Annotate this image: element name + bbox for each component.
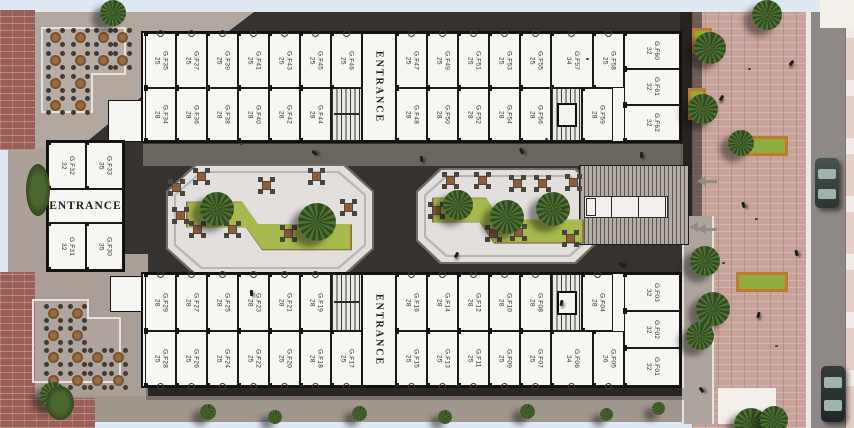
unit-area-label: 25 bbox=[338, 349, 346, 368]
courtyard-table bbox=[228, 225, 237, 234]
pedestrian bbox=[250, 290, 253, 296]
courtyard-table bbox=[197, 172, 206, 181]
unit-area-label: 25 bbox=[307, 51, 315, 70]
palm-tree bbox=[752, 0, 782, 30]
car bbox=[815, 158, 839, 208]
retail-unit: G.F5325 bbox=[489, 33, 520, 88]
door-arc-icon bbox=[532, 30, 539, 37]
retail-unit: G.F5734 bbox=[551, 33, 593, 88]
ramp-arrow-tail bbox=[705, 228, 717, 231]
unit-area-label: 28 bbox=[276, 293, 284, 312]
door-arc-icon bbox=[157, 30, 164, 37]
unit-number-label: G.F18 bbox=[316, 349, 324, 368]
unit-area-label: 28 bbox=[307, 349, 315, 368]
retail-unit: G.F1125 bbox=[458, 331, 489, 386]
unit-area-label: 28 bbox=[527, 293, 535, 312]
unit-area-label: 32 bbox=[644, 113, 652, 132]
unit-area-label: 28 bbox=[214, 105, 222, 124]
retail-unit: G.F4228 bbox=[269, 88, 300, 141]
cafe-table bbox=[98, 32, 109, 43]
door-arc-icon bbox=[408, 271, 415, 278]
courtyard-table bbox=[172, 183, 181, 192]
bird bbox=[586, 58, 589, 60]
driveway-arrow-icon bbox=[684, 222, 698, 232]
unit-number-label: G.F46 bbox=[347, 51, 355, 70]
palm-tree bbox=[268, 410, 282, 424]
unit-number-label: G.F30 bbox=[105, 237, 113, 256]
retail-unit: G.F0925 bbox=[489, 331, 520, 386]
unit-number-label: G.F12 bbox=[474, 293, 482, 312]
unit-number-label: G.F08 bbox=[536, 293, 544, 312]
unit-area-label: 28 bbox=[496, 105, 504, 124]
retail-unit: G.F2425 bbox=[207, 331, 238, 386]
retail-unit: G.F6132 bbox=[624, 69, 680, 105]
cafe-table bbox=[113, 352, 124, 363]
retail-unit: G.F3628 bbox=[176, 88, 207, 141]
door-arc-icon bbox=[439, 383, 446, 390]
retail-unit: G.F3525 bbox=[145, 33, 176, 88]
unit-area-label: 32 bbox=[59, 237, 67, 256]
retail-unit: G.F1325 bbox=[427, 331, 458, 386]
retail-unit: G.F2728 bbox=[176, 274, 207, 331]
unit-number-label: G.F50 bbox=[443, 105, 451, 124]
unit-area-label: 25 bbox=[600, 51, 608, 70]
unit-area-label: 28 bbox=[152, 105, 160, 124]
unit-number-label: G.F29 bbox=[161, 293, 169, 312]
courtyard-table bbox=[312, 172, 321, 181]
bird bbox=[755, 218, 758, 220]
courtyard-table bbox=[193, 225, 202, 234]
retail-unit: G.F4625 bbox=[331, 33, 362, 88]
palm-tree bbox=[520, 404, 535, 419]
cafe-table bbox=[72, 308, 83, 319]
unit-number-label: G.F61 bbox=[652, 77, 660, 96]
unit-area-label: 32 bbox=[644, 357, 652, 376]
ramp-corridor bbox=[584, 196, 668, 218]
cafe-table bbox=[72, 375, 83, 386]
retail-unit: G.F5825 bbox=[593, 33, 624, 88]
unit-area-label: 25 bbox=[214, 51, 222, 70]
door-arc-icon bbox=[312, 271, 319, 278]
door-arc-icon bbox=[605, 30, 612, 37]
unit-area-label: 35 bbox=[96, 156, 104, 175]
cafe-table bbox=[117, 32, 128, 43]
planter-box bbox=[736, 272, 788, 292]
retail-unit: G.F0332 bbox=[624, 274, 680, 311]
cafe-table bbox=[72, 352, 83, 363]
unit-number-label: G.F28 bbox=[161, 349, 169, 368]
unit-number-label: G.F47 bbox=[412, 51, 420, 70]
utility-room bbox=[110, 276, 142, 312]
retail-unit: G.F3828 bbox=[207, 88, 238, 141]
retail-unit: G.F0828 bbox=[520, 274, 551, 331]
bird bbox=[545, 138, 548, 140]
retail-unit: G.F3035 bbox=[86, 223, 123, 270]
door-arc-icon bbox=[343, 383, 350, 390]
unit-number-label: G.F27 bbox=[192, 293, 200, 312]
unit-area-label: 25 bbox=[434, 349, 442, 368]
cafe-table bbox=[75, 32, 86, 43]
unit-number-label: G.F14 bbox=[443, 293, 451, 312]
retail-unit: G.F6232 bbox=[624, 105, 680, 141]
unit-number-label: G.F55 bbox=[536, 51, 544, 70]
courtyard-table bbox=[569, 178, 578, 187]
unit-number-label: G.F17 bbox=[347, 349, 355, 368]
palm-tree bbox=[690, 246, 720, 276]
courtyard-table bbox=[284, 229, 293, 238]
unit-area-label: 28 bbox=[307, 293, 315, 312]
entrance-label: ENTRANCE bbox=[374, 51, 385, 123]
unit-number-label: G.F53 bbox=[505, 51, 513, 70]
cafe-table bbox=[92, 375, 103, 386]
retail-unit: G.F3132 bbox=[48, 223, 86, 270]
door-arc-icon bbox=[439, 271, 446, 278]
unit-number-label: G.F26 bbox=[192, 349, 200, 368]
door-arc-icon bbox=[470, 383, 477, 390]
retail-unit: G.F1028 bbox=[489, 274, 520, 331]
ramp-arrow-icon bbox=[692, 176, 706, 186]
retail-unit: G.F4325 bbox=[269, 33, 300, 88]
unit-number-label: G.F02 bbox=[652, 320, 660, 339]
retail-unit: G.F0232 bbox=[624, 311, 680, 348]
unit-number-label: G.F42 bbox=[285, 105, 293, 124]
courtyard-table bbox=[566, 234, 575, 243]
utility-room bbox=[108, 100, 142, 142]
door-arc-icon bbox=[157, 271, 164, 278]
arcade-walkway bbox=[143, 144, 683, 166]
unit-number-label: G.F58 bbox=[609, 51, 617, 70]
cafe-table bbox=[72, 330, 83, 341]
courtyard-table bbox=[446, 176, 455, 185]
retail-unit: G.F1628 bbox=[396, 274, 427, 331]
corner-building-roof bbox=[820, 0, 854, 28]
cafe-table bbox=[48, 308, 59, 319]
entrance-corridor: ENTRANCE bbox=[362, 274, 396, 386]
door-arc-icon bbox=[219, 30, 226, 37]
cafe-table bbox=[75, 100, 86, 111]
unit-number-label: G.F05 bbox=[609, 349, 617, 368]
retail-unit: G.F3725 bbox=[176, 33, 207, 88]
door-arc-icon bbox=[605, 383, 612, 390]
retail-unit: G.F1228 bbox=[458, 274, 489, 331]
door-arc-icon bbox=[501, 383, 508, 390]
door-arc-icon bbox=[532, 383, 539, 390]
unit-number-label: G.F21 bbox=[285, 293, 293, 312]
door-arc-icon bbox=[470, 271, 477, 278]
retail-unit: G.F2625 bbox=[176, 331, 207, 386]
unit-area-label: 28 bbox=[214, 293, 222, 312]
retail-unit: G.F5028 bbox=[427, 88, 458, 141]
door-arc-icon bbox=[501, 271, 508, 278]
door-arc-icon bbox=[281, 30, 288, 37]
entrance-corridor: ENTRANCE bbox=[362, 33, 396, 141]
door-arc-icon bbox=[219, 383, 226, 390]
retail-unit: G.F1428 bbox=[427, 274, 458, 331]
unit-area-label: 28 bbox=[245, 105, 253, 124]
retail-unit: G.F3428 bbox=[145, 88, 176, 141]
cafe-table bbox=[92, 352, 103, 363]
bird bbox=[748, 68, 751, 70]
unit-number-label: G.F57 bbox=[572, 51, 580, 70]
cafe-table bbox=[50, 78, 61, 89]
unit-number-label: G.F09 bbox=[505, 349, 513, 368]
retail-unit: G.F4925 bbox=[427, 33, 458, 88]
unit-area-label: 28 bbox=[152, 293, 160, 312]
palm-tree bbox=[298, 203, 336, 241]
unit-number-label: G.F56 bbox=[536, 105, 544, 124]
unit-number-label: G.F45 bbox=[316, 51, 324, 70]
door-arc-icon bbox=[312, 30, 319, 37]
car bbox=[821, 366, 845, 422]
unit-number-label: G.F52 bbox=[474, 105, 482, 124]
palm-tree bbox=[352, 406, 367, 421]
retail-unit: G.F0526 bbox=[593, 331, 624, 386]
brick-wall-top-left bbox=[0, 10, 35, 150]
ramp-arrow-tail bbox=[705, 180, 717, 183]
unit-area-label: 32 bbox=[644, 41, 652, 60]
unit-number-label: G.F59 bbox=[598, 105, 606, 124]
unit-area-label: 25 bbox=[152, 349, 160, 368]
unit-area-label: 25 bbox=[496, 51, 504, 70]
unit-number-label: G.F13 bbox=[443, 349, 451, 368]
unit-number-label: G.F36 bbox=[192, 105, 200, 124]
retail-unit: G.F2025 bbox=[269, 331, 300, 386]
unit-number-label: G.F49 bbox=[443, 51, 451, 70]
unit-number-label: G.F20 bbox=[285, 349, 293, 368]
door-arc-icon bbox=[188, 271, 195, 278]
cafe-table bbox=[98, 55, 109, 66]
door-arc-icon bbox=[343, 30, 350, 37]
cafe-table bbox=[50, 100, 61, 111]
unit-area-label: 28 bbox=[276, 105, 284, 124]
courtyard-table bbox=[262, 181, 271, 190]
unit-number-label: G.F32 bbox=[67, 156, 75, 175]
unit-number-label: G.F38 bbox=[223, 105, 231, 124]
courtyard-table bbox=[344, 203, 353, 212]
door-arc-icon bbox=[408, 383, 415, 390]
unit-area-label: 34 bbox=[564, 51, 572, 70]
door-arc-icon bbox=[568, 30, 575, 37]
unit-area-label: 25 bbox=[465, 51, 473, 70]
unit-area-label: 25 bbox=[214, 349, 222, 368]
unit-area-label: 25 bbox=[527, 349, 535, 368]
palm-tree bbox=[490, 200, 524, 234]
unit-number-label: G.F40 bbox=[254, 105, 262, 124]
door-arc-icon bbox=[501, 30, 508, 37]
unit-area-label: 25 bbox=[527, 51, 535, 70]
palm-tree bbox=[600, 408, 613, 421]
palm-tree bbox=[200, 404, 216, 420]
door-arc-icon bbox=[568, 383, 575, 390]
palm-tree bbox=[652, 402, 665, 415]
door-arc-icon bbox=[408, 30, 415, 37]
staircase-elevator bbox=[551, 274, 582, 331]
unit-number-label: G.F43 bbox=[285, 51, 293, 70]
unit-area-label: 28 bbox=[307, 105, 315, 124]
retail-unit: G.F5125 bbox=[458, 33, 489, 88]
palm-tree bbox=[200, 192, 234, 226]
pedestrian bbox=[420, 156, 424, 162]
unit-number-label: G.F22 bbox=[254, 349, 262, 368]
door-arc-icon bbox=[470, 30, 477, 37]
bird bbox=[775, 345, 778, 347]
unit-area-label: 26 bbox=[600, 349, 608, 368]
unit-area-label: 25 bbox=[183, 51, 191, 70]
door-arc-icon bbox=[312, 383, 319, 390]
retail-unit: G.F2825 bbox=[145, 331, 176, 386]
staircase bbox=[331, 274, 362, 331]
courtyard-table bbox=[538, 179, 547, 188]
unit-area-label: 28 bbox=[183, 293, 191, 312]
staircase bbox=[331, 88, 362, 141]
unit-area-label: 28 bbox=[465, 105, 473, 124]
bird bbox=[722, 262, 725, 264]
retail-unit: G.F5928 bbox=[582, 88, 613, 141]
unit-number-label: G.F54 bbox=[505, 105, 513, 124]
unit-number-label: G.F23 bbox=[254, 293, 262, 312]
unit-number-label: G.F15 bbox=[412, 349, 420, 368]
entrance-label: ENTRANCE bbox=[374, 294, 385, 366]
retail-unit: G.F5228 bbox=[458, 88, 489, 141]
unit-number-label: G.F35 bbox=[161, 51, 169, 70]
building-shadow-bottom bbox=[146, 388, 684, 400]
retail-unit: G.F4125 bbox=[238, 33, 269, 88]
door-arc-icon bbox=[250, 30, 257, 37]
unit-area-label: 28 bbox=[589, 105, 597, 124]
retail-unit: G.F4725 bbox=[396, 33, 427, 88]
unit-number-label: G.F07 bbox=[536, 349, 544, 368]
retail-unit: G.F3925 bbox=[207, 33, 238, 88]
cafe-table bbox=[75, 78, 86, 89]
courtyard-table bbox=[432, 206, 441, 215]
unit-area-label: 28 bbox=[434, 105, 442, 124]
retail-unit: G.F4828 bbox=[396, 88, 427, 141]
unit-area-label: 28 bbox=[403, 293, 411, 312]
unit-area-label: 25 bbox=[465, 349, 473, 368]
unit-number-label: G.F25 bbox=[223, 293, 231, 312]
courtyard-table bbox=[478, 176, 487, 185]
unit-area-label: 32 bbox=[644, 283, 652, 302]
unit-area-label: 28 bbox=[183, 105, 191, 124]
retail-unit: G.F2328 bbox=[238, 274, 269, 331]
unit-number-label: G.F04 bbox=[598, 293, 606, 312]
unit-area-label: 25 bbox=[245, 349, 253, 368]
unit-number-label: G.F51 bbox=[474, 51, 482, 70]
unit-number-label: G.F37 bbox=[192, 51, 200, 70]
bird bbox=[240, 143, 243, 145]
retail-unit: G.F3335 bbox=[86, 142, 123, 189]
palm-tree bbox=[443, 190, 473, 220]
retail-unit: G.F4525 bbox=[300, 33, 331, 88]
unit-area-label: 32 bbox=[59, 156, 67, 175]
cafe-table bbox=[113, 375, 124, 386]
door-arc-icon bbox=[188, 30, 195, 37]
entrance-left: ENTRANCE bbox=[48, 189, 123, 223]
retail-unit: G.F0725 bbox=[520, 331, 551, 386]
retail-unit: G.F2528 bbox=[207, 274, 238, 331]
retail-unit: G.F2928 bbox=[145, 274, 176, 331]
palm-tree bbox=[694, 32, 726, 64]
retail-unit: G.F1725 bbox=[331, 331, 362, 386]
retail-unit: G.F5428 bbox=[489, 88, 520, 141]
unit-number-label: G.F39 bbox=[223, 51, 231, 70]
unit-number-label: G.F34 bbox=[161, 105, 169, 124]
unit-area-label: 25 bbox=[496, 349, 504, 368]
staircase-elevator bbox=[551, 88, 582, 141]
door-arc-icon bbox=[250, 383, 257, 390]
cafe-table bbox=[48, 352, 59, 363]
retail-unit: G.F2225 bbox=[238, 331, 269, 386]
unit-number-label: G.F33 bbox=[105, 156, 113, 175]
bush bbox=[46, 386, 74, 420]
bush bbox=[26, 164, 50, 216]
unit-area-label: 34 bbox=[564, 349, 572, 368]
unit-area-label: 28 bbox=[403, 105, 411, 124]
courtyard-table bbox=[513, 179, 522, 188]
door-arc-icon bbox=[532, 271, 539, 278]
retail-unit: G.F3232 bbox=[48, 142, 86, 189]
door-arc-icon bbox=[281, 271, 288, 278]
retail-unit: G.F1828 bbox=[300, 331, 331, 386]
unit-area-label: 28 bbox=[589, 293, 597, 312]
palm-tree bbox=[688, 94, 718, 124]
door-arc-icon bbox=[157, 383, 164, 390]
cafe-table bbox=[50, 32, 61, 43]
unit-area-label: 35 bbox=[96, 237, 104, 256]
unit-area-label: 28 bbox=[434, 293, 442, 312]
retail-wing-bottom: G.F2928G.F2728G.F2528G.F2328G.F2128G.F19… bbox=[141, 272, 682, 388]
unit-number-label: G.F19 bbox=[316, 293, 324, 312]
retail-unit: G.F2128 bbox=[269, 274, 300, 331]
unit-number-label: G.F11 bbox=[474, 349, 482, 368]
retail-unit: G.F6032 bbox=[624, 33, 680, 69]
unit-area-label: 25 bbox=[434, 51, 442, 70]
cafe-table bbox=[75, 55, 86, 66]
bird bbox=[562, 208, 565, 210]
unit-area-label: 28 bbox=[527, 105, 535, 124]
retail-unit: G.F5628 bbox=[520, 88, 551, 141]
retail-unit: G.F0634 bbox=[551, 331, 593, 386]
unit-area-label: 25 bbox=[183, 349, 191, 368]
palm-tree bbox=[686, 322, 714, 350]
unit-number-label: G.F44 bbox=[316, 105, 324, 124]
unit-number-label: G.F24 bbox=[223, 349, 231, 368]
retail-unit: G.F0428 bbox=[582, 274, 613, 331]
palm-tree bbox=[728, 130, 754, 156]
unit-area-label: 25 bbox=[245, 51, 253, 70]
door-arc-icon bbox=[219, 271, 226, 278]
door-arc-icon bbox=[594, 271, 601, 278]
cafe-table bbox=[117, 55, 128, 66]
unit-number-label: G.F01 bbox=[652, 357, 660, 376]
courtyard-table bbox=[176, 211, 185, 220]
palm-tree bbox=[760, 406, 788, 428]
unit-number-label: G.F03 bbox=[652, 283, 660, 302]
palm-tree bbox=[438, 410, 452, 424]
left-block: G.F3232G.F3335ENTRANCEG.F3132G.F3035 bbox=[46, 140, 125, 272]
entrance-label: ENTRANCE bbox=[49, 200, 122, 212]
cafe-table bbox=[50, 55, 61, 66]
unit-area-label: 25 bbox=[338, 51, 346, 70]
unit-area-label: 25 bbox=[276, 349, 284, 368]
unit-number-label: G.F16 bbox=[412, 293, 420, 312]
unit-number-label: G.F31 bbox=[67, 237, 75, 256]
unit-area-label: 32 bbox=[644, 77, 652, 96]
retail-unit: G.F1525 bbox=[396, 331, 427, 386]
unit-number-label: G.F10 bbox=[505, 293, 513, 312]
door-arc-icon bbox=[250, 271, 257, 278]
retail-unit: G.F4028 bbox=[238, 88, 269, 141]
